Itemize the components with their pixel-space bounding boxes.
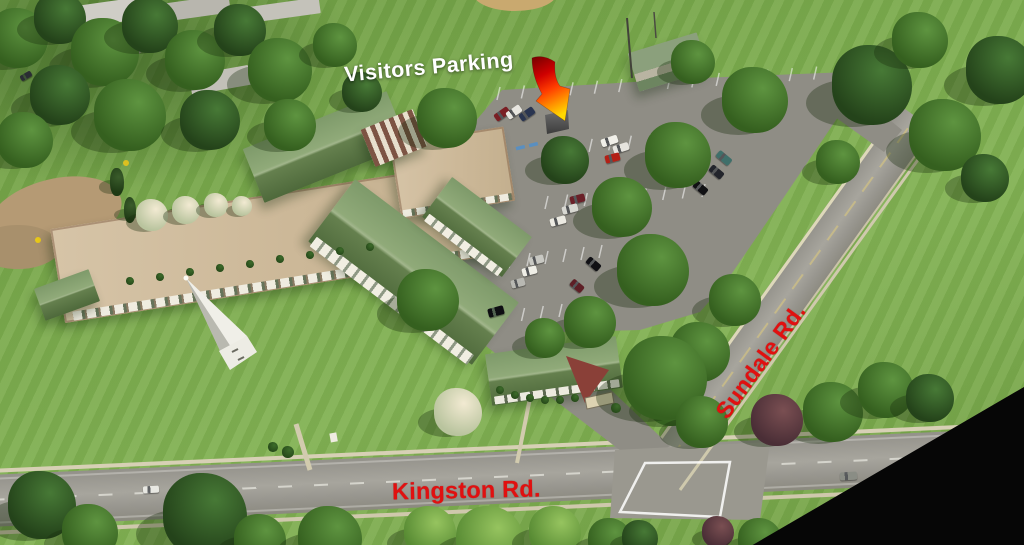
tree — [709, 274, 761, 326]
tree — [966, 36, 1024, 104]
tree — [541, 136, 589, 184]
bush — [556, 396, 564, 404]
bush — [541, 396, 549, 404]
tree — [397, 269, 459, 331]
bush — [156, 273, 164, 281]
visitors-parking-arrow — [526, 55, 572, 139]
tree — [671, 40, 715, 84]
bush — [276, 255, 284, 263]
bush — [246, 260, 254, 268]
tree — [592, 177, 652, 237]
flowering-tree — [204, 193, 228, 217]
tree — [617, 234, 689, 306]
flowering-tree — [232, 196, 252, 216]
car-marker — [143, 485, 159, 493]
tree — [961, 154, 1009, 202]
tree — [0, 112, 53, 168]
flowering-tree — [434, 388, 482, 436]
car-marker — [839, 472, 856, 481]
bush — [526, 394, 534, 402]
bush — [268, 442, 278, 452]
tree — [722, 67, 788, 133]
bush — [611, 403, 621, 413]
tree — [94, 79, 166, 151]
bush — [571, 394, 579, 402]
tree — [417, 88, 477, 148]
tree — [816, 140, 860, 184]
tree — [892, 12, 948, 68]
tree — [313, 23, 357, 67]
tree — [906, 374, 954, 422]
bush — [186, 268, 194, 276]
bush — [366, 243, 374, 251]
bush — [216, 264, 224, 272]
bush — [496, 386, 504, 394]
tree — [564, 296, 616, 348]
tree — [645, 122, 711, 188]
kingston-road-label: Kingston Rd. — [392, 476, 541, 504]
tree — [751, 394, 803, 446]
bush — [336, 247, 344, 255]
aerial-photo-church-campus: Visitors Parking Sundale Rd. Kingston Rd… — [0, 0, 1024, 545]
tree — [110, 168, 123, 197]
bush — [126, 277, 134, 285]
bush — [282, 446, 294, 458]
tree — [525, 318, 565, 358]
tree — [180, 90, 240, 150]
bush — [511, 391, 519, 399]
bush — [306, 251, 314, 259]
tree — [264, 99, 316, 151]
